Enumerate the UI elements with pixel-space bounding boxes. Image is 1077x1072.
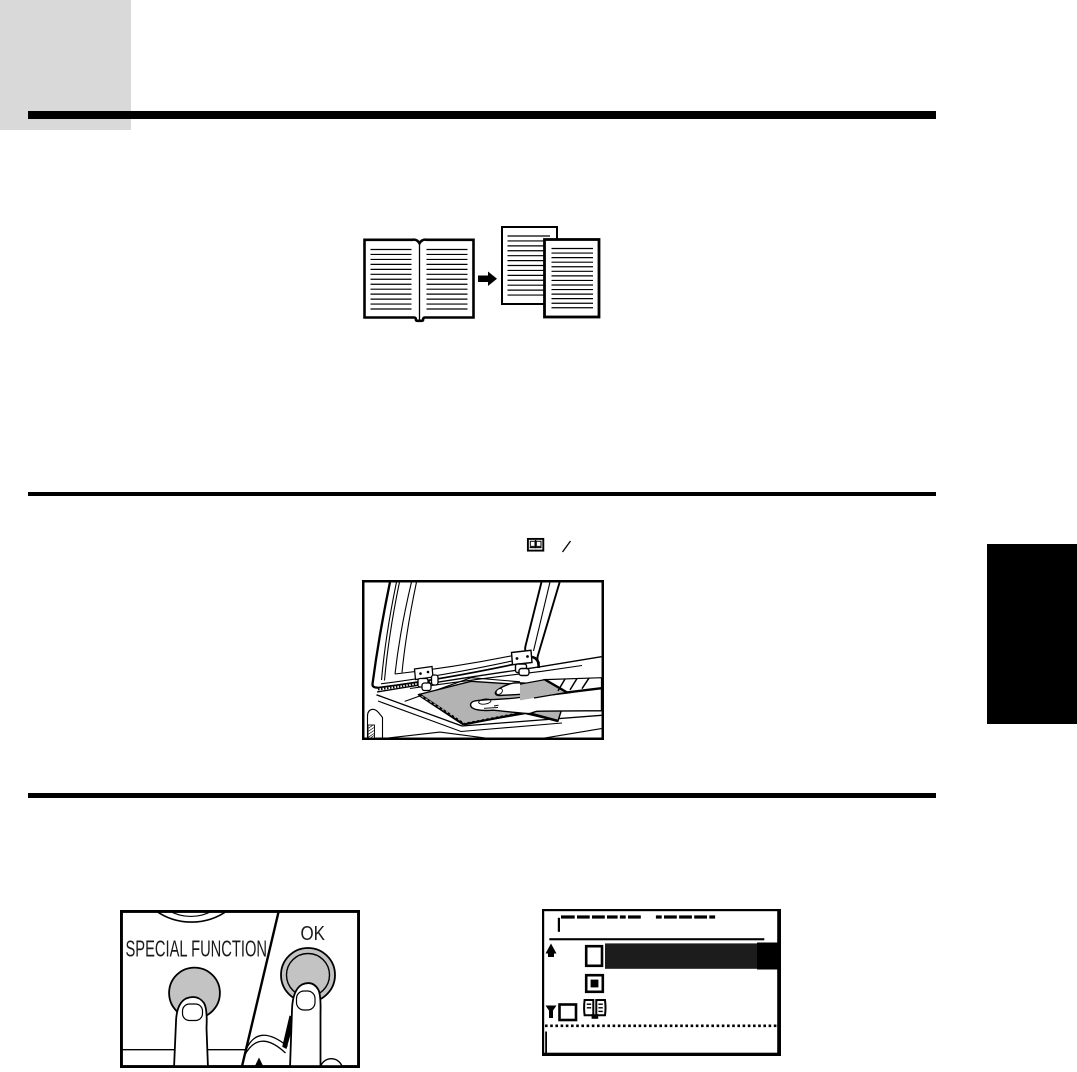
svg-text:OK: OK: [301, 923, 326, 945]
svg-text:SPECIAL FUNCTION: SPECIAL FUNCTION: [126, 936, 268, 962]
